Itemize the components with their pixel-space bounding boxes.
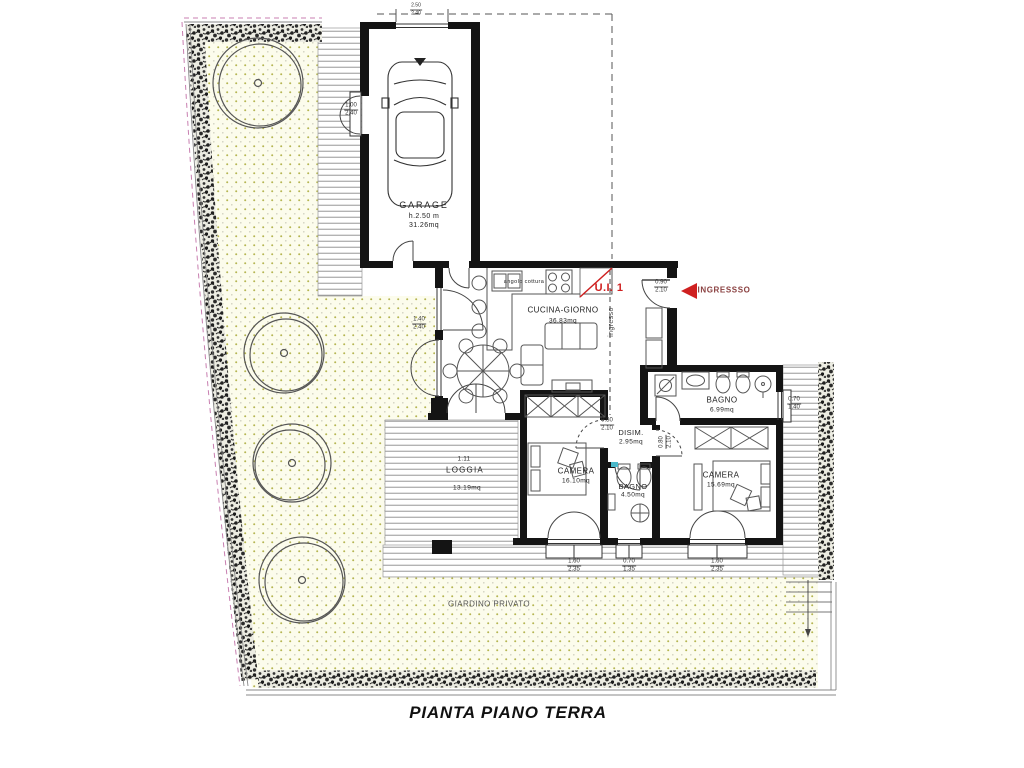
entrance-door-dim: 0.902.10 <box>654 280 668 295</box>
camera1-window-dim: 1.602.35 <box>567 559 581 574</box>
bagno2-area-label: 4.50mq <box>621 491 645 498</box>
bidet-icon <box>716 372 730 393</box>
disim-area-label: 2.95mq <box>619 438 643 445</box>
bagno1-window-dim: 0.701.40 <box>787 397 801 412</box>
loggia-note-label: 1.11 <box>458 457 471 464</box>
floor-plan-page: GARAGE h.2.50 m 31.26mq angolo cottura C… <box>0 0 1024 768</box>
garage-height-label: h.2.50 m <box>409 213 439 221</box>
shower-icon <box>755 376 771 398</box>
bagno2-door-dim: 0.802.10 <box>659 435 674 449</box>
garage-area-label: 31.26mq <box>409 222 439 230</box>
bagno1-label: BAGNO <box>707 397 738 406</box>
bagno1-area-label: 6.99mq <box>710 406 734 413</box>
camera2-label: CAMERA <box>703 472 740 481</box>
camera2-window-dim: 1.602.35 <box>710 559 724 574</box>
entrance-label: INGRESSSO <box>698 287 751 296</box>
angolo-cottura-label: angolo cottura <box>504 279 544 285</box>
cucina-area-label: 36.83mq <box>549 317 577 324</box>
camera1-label: CAMERA <box>558 468 595 477</box>
giardino-label: GIARDINO PRIVATO <box>448 601 530 610</box>
bathroom1-fixtures <box>655 372 771 398</box>
cucina-window-dim: 1.402.40 <box>412 317 426 332</box>
bagno2-label: BAGNO <box>618 483 647 491</box>
garage-side-door-dim: 1.002.40 <box>344 103 358 118</box>
toilet-icon <box>736 372 750 393</box>
unit-label: U.I. 1 <box>595 282 624 294</box>
ingresso-corridor-label: ingresso <box>608 307 616 337</box>
garage-label: GARAGE <box>399 201 448 211</box>
sink-icon <box>682 372 709 389</box>
floor-plan-drawing <box>0 0 1024 768</box>
washing-machine-icon <box>655 375 676 396</box>
garage-door-dim: 2.502.40 <box>410 3 422 18</box>
camera2-area-label: 15.69mq <box>707 481 735 488</box>
page-title: PIANTA PIANO TERRA <box>409 703 607 723</box>
loggia-label: LOGGIA <box>446 467 484 476</box>
car-icon <box>382 58 458 206</box>
disim-label: DISIM. <box>618 429 643 437</box>
bagno2-window-dim: 0.701.35 <box>622 559 636 574</box>
bedroom2-furniture <box>694 427 770 511</box>
shower-icon <box>631 504 649 522</box>
cucina-label: CUCINA-GIORNO <box>528 307 599 316</box>
entrance-arrow-icon <box>681 283 697 299</box>
disim-door-dim: 0.802.10 <box>600 418 614 433</box>
stove-icon <box>546 270 572 294</box>
camera1-area-label: 16.10mq <box>562 477 590 484</box>
loggia-area-label: 13.19mq <box>453 484 481 491</box>
